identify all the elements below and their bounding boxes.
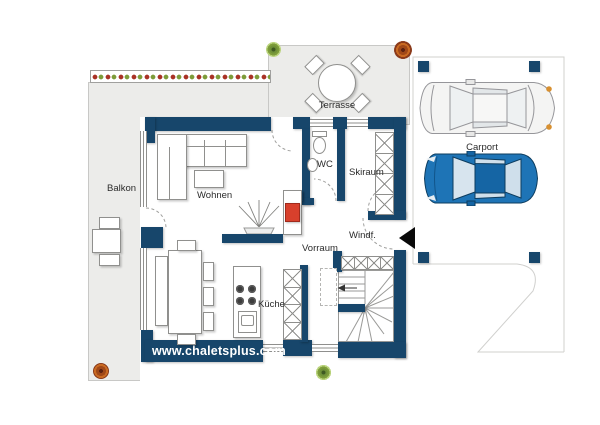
cabinet-cell (283, 304, 302, 323)
car-blue (421, 151, 541, 206)
plant-pot (315, 364, 332, 381)
wall-wc-skiroom (337, 129, 345, 201)
window-skiroom (347, 119, 368, 127)
window-hall-south (312, 344, 338, 352)
window-living-west-upper (140, 131, 147, 207)
room-label-living: Wohnen (197, 190, 232, 201)
ottoman (194, 170, 224, 188)
shelf-cell (354, 256, 368, 270)
floor-plan-canvas: www.chaletsplus.com (0, 0, 600, 425)
room-label-kitchen: Küche (258, 299, 285, 310)
carport-post (529, 252, 540, 263)
wall-left-post (141, 227, 163, 248)
plant-pot (266, 42, 281, 57)
shelf-cell (367, 256, 381, 270)
dining-chair (203, 312, 214, 331)
fireplace-rays (239, 200, 279, 234)
driveway-curve (413, 264, 564, 352)
entrance-arrow-icon (399, 227, 415, 249)
stove-burner (236, 285, 244, 293)
balcony-chair (99, 217, 120, 229)
sofa-seam (187, 146, 246, 147)
cabinet-cell (283, 322, 302, 341)
carport-post (418, 252, 429, 263)
carport-post (529, 61, 540, 72)
balcony-chair (99, 254, 120, 266)
room-label-skiroom: Skiraum (349, 167, 384, 178)
sink-basin (241, 315, 254, 326)
window-wc (310, 119, 333, 127)
sofa-seam (169, 147, 170, 199)
plant-pot (93, 363, 109, 379)
wall-bottom-right (338, 342, 406, 358)
room-label-vestibule: Windf. (349, 230, 376, 241)
balcony-table (92, 229, 121, 253)
dining-chair (177, 334, 196, 345)
wall-right-upper (394, 117, 406, 218)
wall-bottom-post (283, 340, 312, 356)
carport-post (418, 61, 429, 72)
cabinet-cell (283, 287, 302, 306)
room-label-hallway: Vorraum (302, 243, 338, 254)
wall-fireplace (222, 234, 283, 243)
stove-burner (248, 297, 256, 305)
toilet-bowl (313, 137, 326, 154)
wall-top-living (145, 117, 271, 131)
locker-cell (375, 132, 394, 154)
kitchen-tall-cabinet (283, 270, 302, 340)
terrace-door-arc (272, 130, 293, 151)
wall-top-b (333, 117, 347, 129)
locker-cell (375, 194, 394, 216)
terrace-table (318, 64, 356, 102)
dining-table (168, 250, 202, 334)
dining-chair (203, 287, 214, 306)
window-living-west-lower (140, 248, 147, 330)
dining-chair (203, 262, 214, 281)
car-silver (416, 79, 558, 137)
website-watermark: www.chaletsplus.com (145, 340, 263, 362)
room-label-terrace: Terrasse (300, 100, 374, 111)
shelf-cell (380, 256, 394, 270)
stove-burner (236, 297, 244, 305)
stair-shelf (342, 256, 394, 270)
wall-wc-bottom (302, 198, 314, 205)
sofa-seam (225, 140, 226, 166)
balcony-door-arc (146, 208, 166, 228)
room-label-carport: Carport (450, 142, 514, 153)
stair-void-outline (320, 268, 337, 306)
dining-bench (155, 256, 168, 326)
room-label-balcony: Balkon (107, 183, 136, 194)
wall-stair-half (338, 304, 365, 312)
wall-top-a (293, 117, 310, 129)
dining-chair (177, 240, 196, 251)
plant-pot (394, 41, 412, 59)
website-text: www.chaletsplus.com (152, 344, 286, 358)
wc-door-arc (314, 179, 336, 201)
sofa-seam (204, 140, 205, 166)
room-label-wc: WC (317, 159, 333, 170)
shelf-cell (341, 256, 355, 270)
sofa-left-arm (157, 134, 187, 200)
cabinet-cell (283, 269, 302, 288)
fireplace-stove (285, 203, 300, 222)
stove-burner (248, 285, 256, 293)
